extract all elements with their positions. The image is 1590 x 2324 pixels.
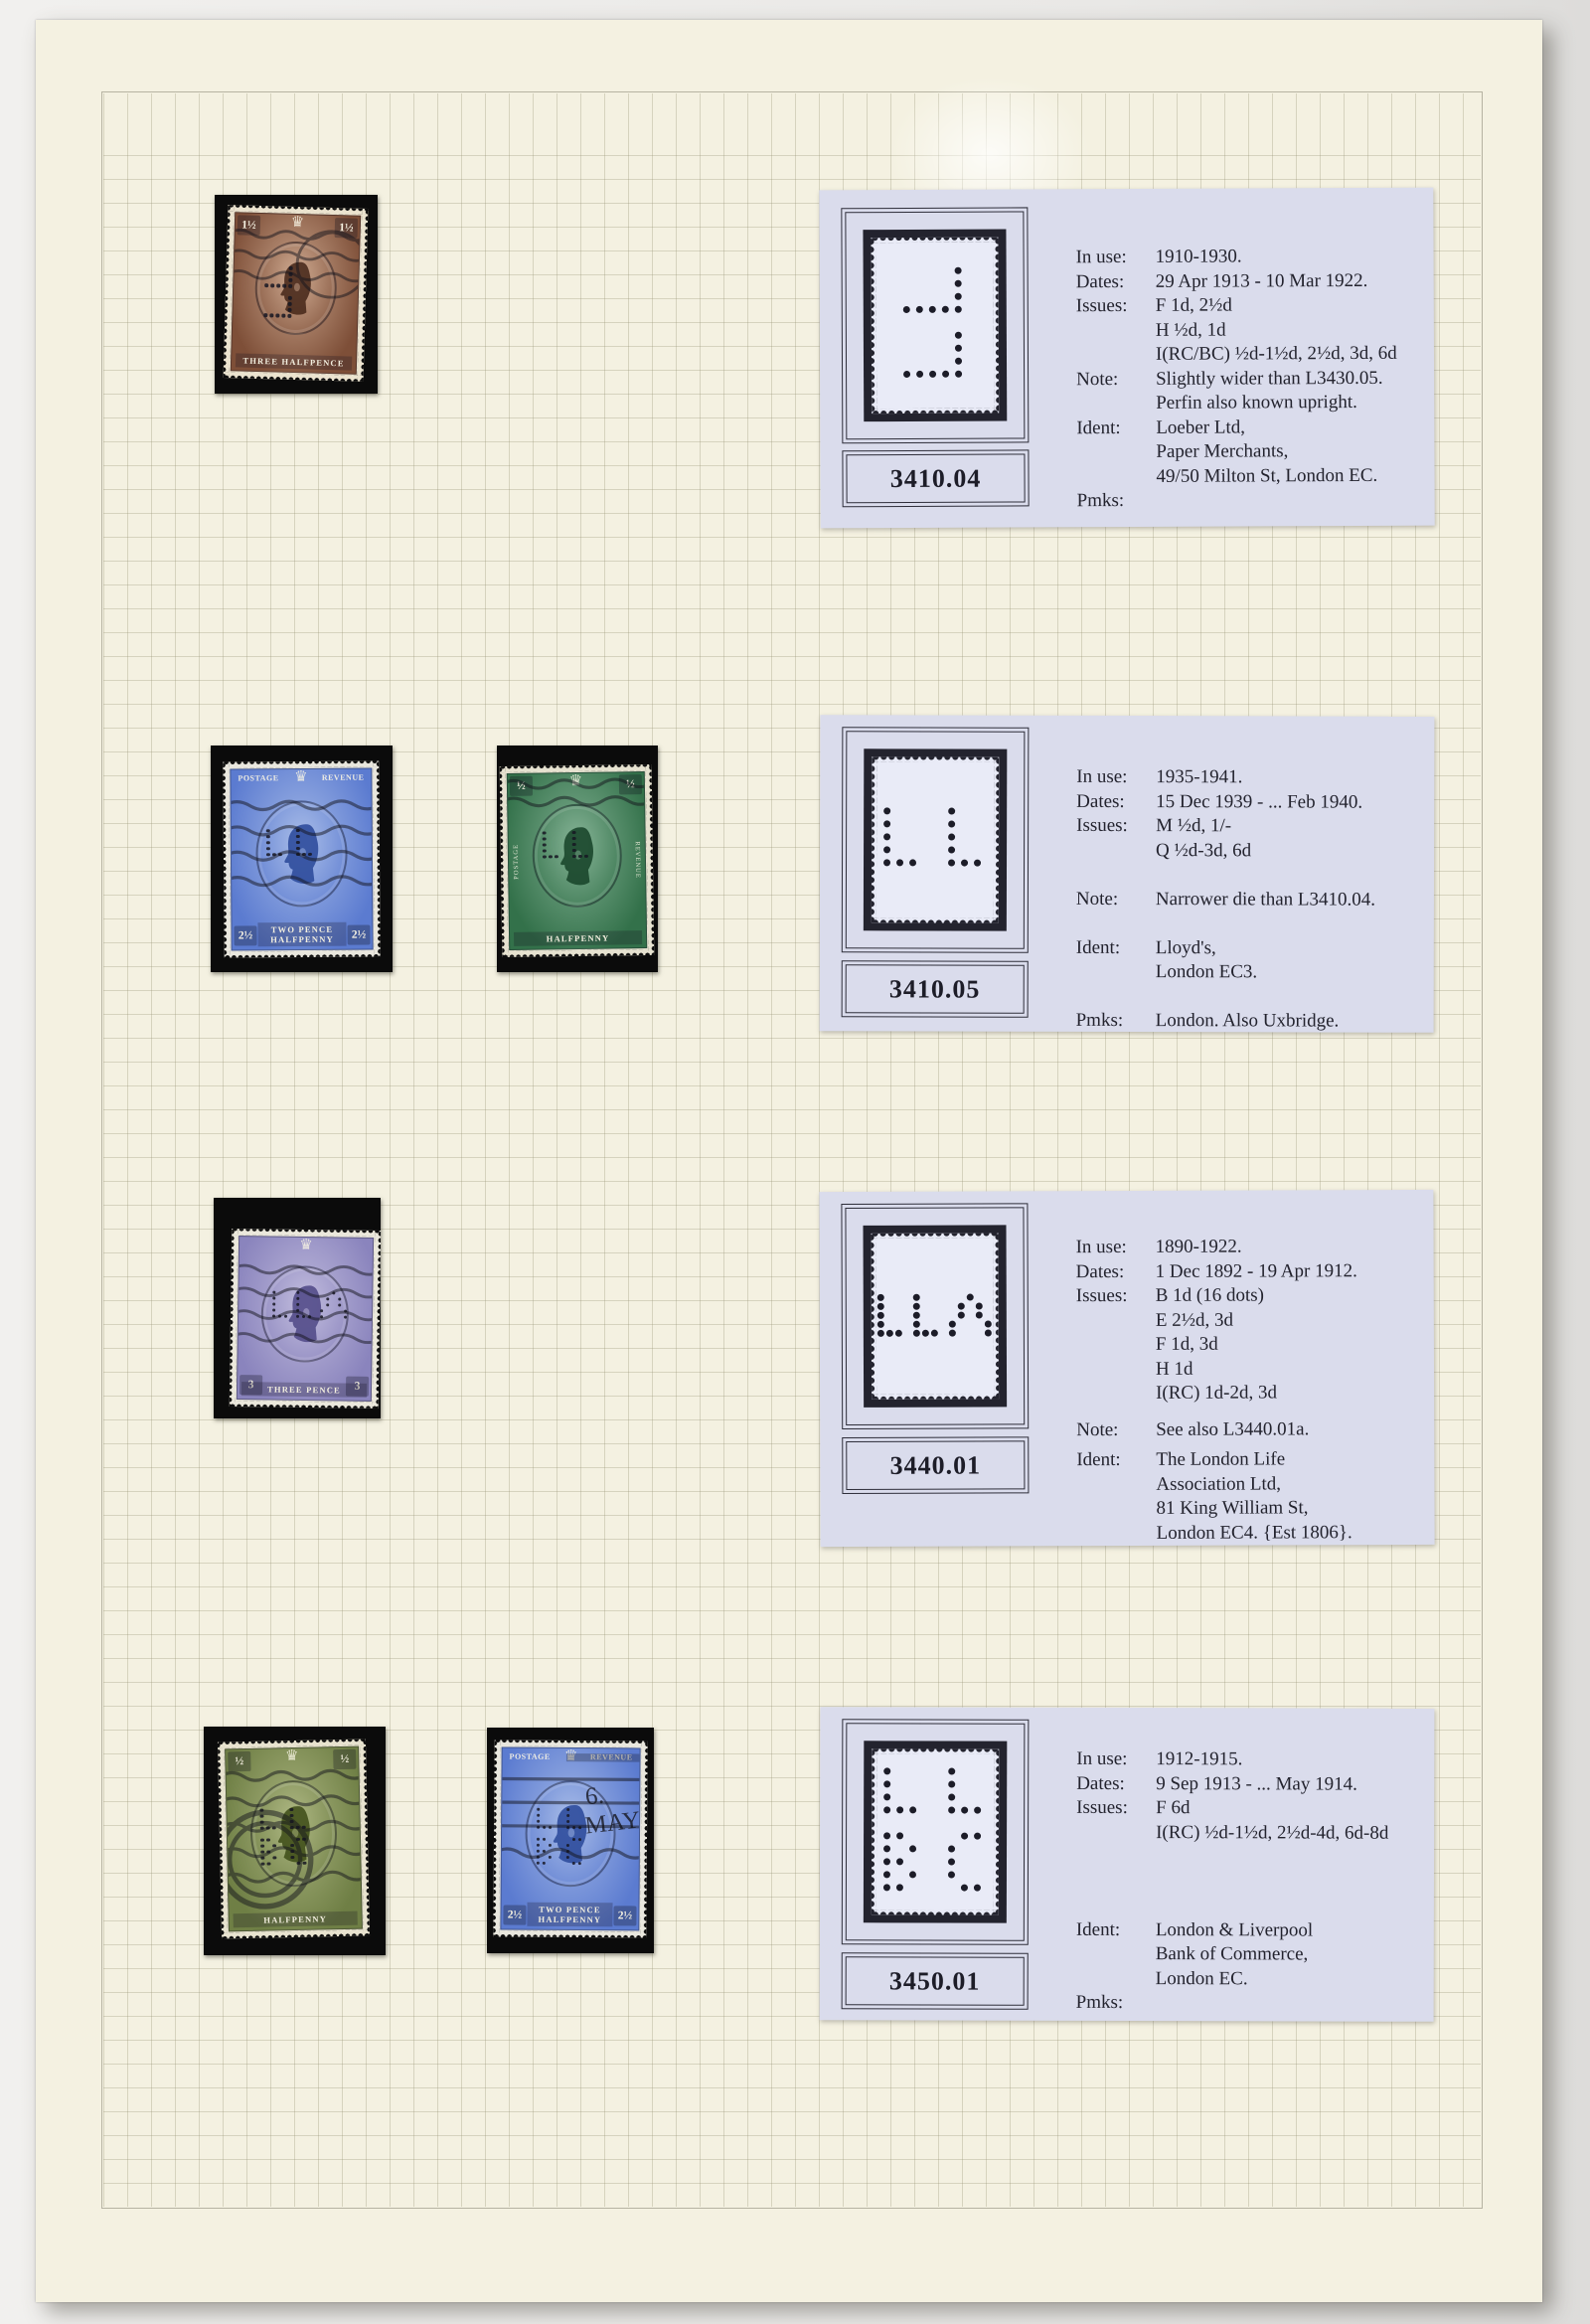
field-row: Ident:Loeber Ltd,Paper Merchants,49/50 M… [1076,415,1420,489]
stamp-violet-three-pence: ♛33THREE PENCE [230,1229,381,1409]
stamp-body: POSTAGEREVENUE♛½½HALFPENNY [500,764,655,957]
scallop-edge [872,1909,999,1914]
stamp-outline-frame [864,1741,1007,1922]
scallop-edge [872,1394,999,1399]
stamp-brown-three-halfpence: ♛1½1½THREE HALFPENCE [224,205,369,382]
perfin-diagram-box [841,1203,1029,1429]
scallop-edge [994,1749,999,1915]
perforation-edge [646,764,655,955]
catalog-number-box: 3410.04 [842,449,1029,507]
perforation-edge [373,760,380,956]
perforation-edge [502,949,654,957]
field-label: Note: [1076,1418,1156,1443]
cancellation-mark [508,772,646,949]
card-fields: In use:1935-1941.Dates:15 Dec 1939 - ...… [1076,765,1421,1034]
scallop-edge [872,917,999,922]
field-value: 15 Dec 1939 - ... Feb 1940. [1156,790,1420,815]
scallop-edge [871,238,876,414]
stamp-body: POSTAGEREVENUE♛2½2½TWO PENCEHALFPENNY [223,760,380,957]
field-row: In use:1910-1930. [1076,245,1420,270]
field-label: Dates: [1076,789,1156,814]
field-value: London. Also Uxbridge. [1156,1009,1420,1034]
card-fields: In use:1912-1915.Dates:9 Sep 1913 - ... … [1076,1747,1421,2016]
field-value: Lloyd's,London EC3. [1156,936,1420,986]
field-value: 1890-1922. [1156,1235,1420,1259]
stamp-design: POSTAGEREVENUE♛2½2½TWO PENCEHALFPENNY6.M… [500,1747,640,1931]
diagram-inner-border [846,731,1026,948]
perfin-diagram-box [842,1719,1030,1944]
field-row: In use:1912-1915. [1076,1747,1420,1772]
field-value: Narrower die than L3410.04. [1156,888,1420,913]
perfin-catalog-card-3410-05: 3410.05 In use:1935-1941.Dates:15 Dec 19… [820,715,1435,1033]
card-fields: In use:1890-1922.Dates:1 Dec 1892 - 19 A… [1076,1235,1421,1547]
scallop-edge [994,757,999,923]
scallop-edge [872,756,999,761]
diagram-inner-border [845,1207,1025,1425]
field-value: London & LiverpoolBank of Commerce,Londo… [1156,1918,1420,1992]
field-label: Issues: [1076,814,1156,863]
field-row: Note:Narrower die than L3410.04. [1076,887,1420,912]
field-row: Pmks: [1076,1991,1420,2016]
field-label: Issues: [1076,294,1156,368]
catalog-number: 3450.01 [889,1966,981,1996]
scallop-edge [993,238,999,414]
field-row: Dates:29 Apr 1913 - 10 Mar 1922. [1076,268,1420,294]
field-label: In use: [1076,765,1156,790]
stamp-body: POSTAGEREVENUE♛2½2½TWO PENCEHALFPENNY6.M… [493,1740,647,1937]
stamp-design: ♛1½1½THREE HALFPENCE [231,212,361,374]
field-value: The London LifeAssociation Ltd,81 King W… [1156,1447,1420,1546]
field-label: Pmks: [1076,1991,1156,2016]
catalog-number: 3440.01 [890,1450,982,1480]
stamp-mount: POSTAGEREVENUE♛½½HALFPENNY [497,746,658,972]
field-label: Note: [1076,887,1156,912]
field-row: Issues:M ½d, 1/-Q ½d-3d, 6d [1076,814,1420,864]
perfin-catalog-card-3450-01: 3450.01 In use:1912-1915.Dates:9 Sep 191… [820,1707,1435,2022]
field-value: Loeber Ltd,Paper Merchants,49/50 Milton … [1156,415,1420,489]
perfin-diagram-box [842,727,1030,952]
field-row: Note:Slightly wider than L3430.05.Perfin… [1076,366,1420,416]
field-value: 1935-1941. [1156,765,1420,790]
stamp-mount: ♛33THREE PENCE [214,1198,381,1418]
field-value: F 6dI(RC) ½d-1½d, 2½d-4d, 6d-8d [1156,1796,1420,1846]
field-row: Note:See also L3440.01a. [1076,1417,1420,1443]
perforation-edge [225,950,381,957]
field-row: Pmks: [1077,488,1421,514]
field-label: In use: [1076,1236,1156,1260]
stamp-blue-twopence-halfpenny-2: POSTAGEREVENUE♛2½2½TWO PENCEHALFPENNY6.M… [493,1740,647,1937]
stamp-blue-twopence-halfpenny: POSTAGEREVENUE♛2½2½TWO PENCEHALFPENNY [223,760,380,957]
field-label: Issues: [1076,1796,1156,1845]
perfin-catalog-card-3440-01: 3440.01 In use:1890-1922.Dates:1 Dec 189… [819,1190,1434,1547]
field-label: In use: [1076,1747,1156,1772]
album-page: ♛1½1½THREE HALFPENCE POSTAGEREVENUE♛2½2½… [36,20,1542,2302]
cancellation-mark [226,1747,362,1931]
field-value: 9 Sep 1913 - ... May 1914. [1156,1772,1420,1797]
scallop-edge [872,1233,999,1238]
field-label: Dates: [1076,1771,1156,1796]
perfin-dots [883,1767,987,1897]
field-row: In use:1890-1922. [1076,1235,1420,1260]
field-row: Pmks:London. Also Uxbridge. [1076,1009,1420,1034]
field-value: 1912-1915. [1156,1747,1420,1772]
stamp-green-halfpenny: POSTAGEREVENUE♛½½HALFPENNY [500,764,655,957]
stamp-design: POSTAGEREVENUE♛2½2½TWO PENCEHALFPENNY [230,768,373,951]
field-label: Ident: [1076,935,1156,984]
perforation-edge [373,1231,381,1409]
graph-paper-top-strip [103,93,1481,155]
field-row: Ident:London & LiverpoolBank of Commerce… [1076,1917,1420,1991]
perfin-dots [902,267,968,384]
perforation-edge [223,760,379,767]
field-label: Ident: [1076,1917,1156,1991]
cancellation-mark [231,769,372,950]
stamp-body: ♛33THREE PENCE [230,1229,381,1409]
stamp-design: POSTAGEREVENUE♛½½HALFPENNY [507,771,647,950]
stamp-design: ♛33THREE PENCE [237,1236,374,1402]
catalog-number: 3410.04 [890,463,982,493]
cancellation-mark: 6.MAY [501,1748,639,1930]
field-row: Dates:9 Sep 1913 - ... May 1914. [1076,1771,1420,1796]
stamp-outline-frame [863,1225,1007,1408]
diagram-inner-border [845,211,1025,439]
field-label: In use: [1076,246,1156,270]
perforation-edge [495,1740,648,1746]
field-value: 29 Apr 1913 - 10 Mar 1922. [1156,268,1420,294]
scallop-edge [871,238,998,244]
stamp-mount: POSTAGEREVENUE♛2½2½TWO PENCEHALFPENNY6.M… [487,1728,654,1953]
scallop-edge [994,1233,1000,1399]
field-value: See also L3440.01a. [1156,1417,1420,1442]
svg-text:6.: 6. [583,1782,605,1811]
diagram-inner-border [846,1723,1026,1940]
field-row: Issues:F 6dI(RC) ½d-1½d, 2½d-4d, 6d-8d [1076,1796,1420,1846]
perfin-dots [876,1293,993,1338]
perfin-catalog-card-3410-04: 3410.04 In use:1910-1930.Dates:29 Apr 19… [819,188,1434,529]
stamp-design: ♛½½HALFPENNY [225,1746,363,1932]
field-row: In use:1935-1941. [1076,765,1420,790]
scallop-edge [872,1748,876,1914]
cancellation-mark [238,1237,373,1401]
field-value: 1910-1930. [1156,245,1420,270]
field-value: M ½d, 1/-Q ½d-3d, 6d [1156,814,1420,864]
field-value: F 1d, 2½dH ½d, 1dI(RC/BC) ½d-1½d, 2½d, 3… [1156,293,1420,368]
stamp-olive-halfpenny: ♛½½HALFPENNY [218,1739,370,1938]
stamp-outline-frame [864,748,1007,930]
field-row: Issues:B 1d (16 dots)E 2½d, 3dF 1d, 3dH … [1076,1283,1420,1407]
catalog-number-box: 3410.05 [842,960,1029,1017]
stamp-body: ♛½½HALFPENNY [218,1739,370,1938]
perforation-edge [493,1930,646,1937]
stamp-outline-frame [863,230,1007,422]
svg-text:MAY: MAY [583,1807,639,1840]
cancellation-mark [232,213,360,373]
scallop-edge [872,409,999,415]
field-label: Pmks: [1076,1009,1156,1034]
field-row: Ident:Lloyd's,London EC3. [1076,935,1420,985]
field-row: Ident:The London LifeAssociation Ltd,81 … [1076,1447,1420,1546]
perfin-dots [883,807,987,872]
catalog-number: 3410.05 [889,974,981,1004]
perforation-edge [230,1401,379,1409]
field-row: Issues:F 1d, 2½dH ½d, 1dI(RC/BC) ½d-1½d,… [1076,293,1420,368]
field-label: Note: [1076,367,1156,415]
field-label: Dates: [1076,269,1156,294]
field-value: Slightly wider than L3430.05.Perfin also… [1156,366,1420,415]
field-label: Issues: [1076,1284,1156,1407]
perforation-edge [640,1741,647,1937]
scallop-edge [872,1234,877,1400]
perfin-diagram-box [841,207,1029,443]
field-value [1157,488,1421,514]
scallop-edge [872,756,876,922]
stamp-mount: ♛1½1½THREE HALFPENCE [215,195,378,394]
field-row: Dates:15 Dec 1939 - ... Feb 1940. [1076,789,1420,814]
field-row: Dates:1 Dec 1892 - 19 Apr 1912. [1076,1258,1420,1284]
stamp-mount: ♛½½HALFPENNY [204,1727,386,1955]
stamp-body: ♛1½1½THREE HALFPENCE [224,205,369,382]
catalog-number-box: 3440.01 [842,1436,1029,1494]
field-value: B 1d (16 dots)E 2½d, 3dF 1d, 3dH 1dI(RC)… [1156,1283,1420,1406]
field-label: Ident: [1076,415,1156,489]
card-fields: In use:1910-1930.Dates:29 Apr 1913 - 10 … [1076,245,1421,514]
stamp-mount: POSTAGEREVENUE♛2½2½TWO PENCEHALFPENNY [211,746,393,972]
field-value [1156,1991,1420,2016]
field-label: Pmks: [1077,489,1157,514]
catalog-number-box: 3450.01 [842,1952,1029,2009]
field-label: Dates: [1076,1259,1156,1284]
scallop-edge [872,1748,999,1753]
field-value: 1 Dec 1892 - 19 Apr 1912. [1156,1258,1420,1283]
field-label: Ident: [1076,1448,1156,1546]
